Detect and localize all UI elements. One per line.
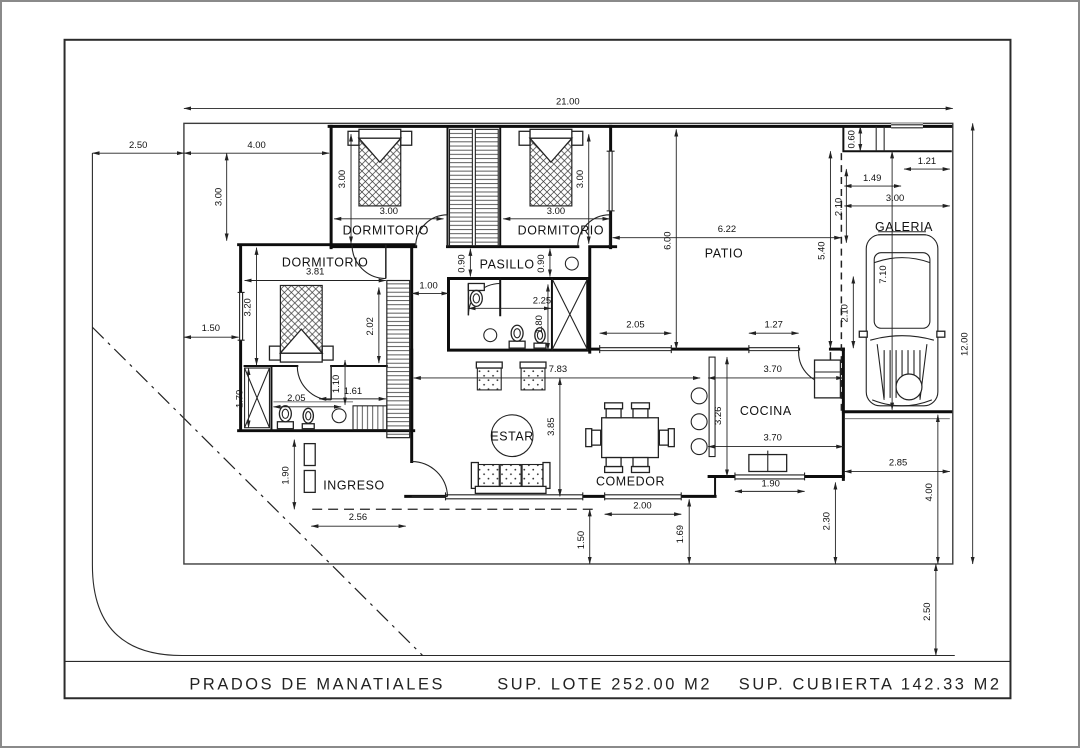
stool-icon (691, 439, 707, 455)
dim-galeria-width: 3.00 (886, 193, 904, 204)
dim-setback-a: 1.50 (576, 531, 587, 549)
dim-estar-height: 3.85 (546, 418, 557, 436)
room-label-dormitorio-c: DORMITORIO (282, 256, 368, 270)
bed-icon (348, 129, 412, 206)
window (600, 345, 672, 353)
dim-passage-width: 1.00 (419, 280, 437, 291)
dim-sidewalk: 2.50 (129, 140, 147, 151)
room-label-dormitorio-a: DORMITORIO (343, 224, 429, 238)
room-label-patio: PATIO (705, 247, 743, 261)
dim-dorm-b-width: 3.00 (547, 206, 565, 217)
floor-plan-drawing: 21.00 12.00 2.50 4.00 3.00 3.00 3.00 3.0… (2, 2, 1078, 746)
dim-bath-width: 2.25 (533, 295, 551, 306)
wardrobe-icon (449, 129, 472, 245)
car-icon (859, 232, 945, 406)
dim-bath-c-closet: 1.70 (235, 390, 246, 408)
bidet-icon (302, 408, 314, 428)
dim-dorm-c-bed: 2.02 (365, 317, 376, 335)
washbasin-icon (484, 329, 497, 342)
armchair-icon (520, 362, 546, 390)
dim-hall-door-a: 0.90 (456, 254, 467, 272)
dim-backyard-width: 2.85 (889, 458, 907, 469)
dim-bath-c-inner: 1.61 (344, 386, 362, 397)
room-label-cocina: COCINA (740, 404, 792, 418)
dim-bath-height: 1.80 (534, 315, 545, 333)
floor-plan-sheet: 21.00 12.00 2.50 4.00 3.00 3.00 3.00 3.0… (0, 0, 1080, 748)
sink-icon (749, 451, 787, 472)
dim-cocina-width-b: 3.70 (764, 433, 782, 444)
dining-set-icon (586, 403, 675, 473)
dim-dorm-b-height: 3.00 (575, 170, 586, 188)
dim-lot-width: 21.00 (556, 96, 580, 107)
dim-patio-window-b: 1.27 (765, 319, 783, 330)
dim-galeria-top-a: 1.21 (918, 156, 936, 167)
dim-ingreso-width: 2.56 (349, 512, 367, 523)
stair-icon (387, 281, 410, 438)
dim-bath-c-width: 2.05 (287, 393, 305, 404)
toilet-icon (468, 283, 484, 306)
step-icon (353, 406, 387, 430)
dim-cocina-height: 3.26 (713, 407, 724, 425)
title-block: PRADOS DE MANATIALES SUP. LOTE 252.00 M2… (189, 675, 1001, 693)
dim-galeria-shelf: 0.60 (846, 130, 857, 148)
room-label-pasillo: PASILLO (480, 258, 535, 272)
dim-patio-height: 6.00 (662, 232, 673, 250)
window (607, 151, 615, 211)
lot-surface: SUP. LOTE 252.00 M2 (497, 675, 712, 693)
dim-cocina-window: 1.90 (762, 478, 780, 489)
stool-icon (691, 388, 707, 404)
dim-setback-b: 1.69 (675, 525, 686, 543)
sofa-icon (471, 463, 550, 494)
covered-surface: SUP. CUBIERTA 142.33 M2 (739, 675, 1002, 693)
armchair-icon (476, 362, 502, 390)
window (749, 345, 799, 353)
room-label-galeria: GALERIA (875, 220, 933, 234)
dim-lot-depth: 12.00 (960, 332, 971, 356)
bed-icon (519, 129, 583, 206)
washbasin-icon (332, 409, 346, 423)
window (605, 492, 682, 500)
dim-patio-window-a: 2.05 (626, 319, 644, 330)
toilet-icon (509, 325, 525, 348)
dim-dorm-a-height: 3.00 (337, 170, 348, 188)
dim-patio-width: 6.22 (718, 224, 736, 235)
fridge-icon (815, 360, 841, 398)
wardrobe-icon (475, 129, 498, 245)
dim-dorm-a-width: 3.00 (380, 206, 398, 217)
room-label-estar: ESTAR (490, 430, 533, 444)
column (304, 444, 315, 466)
dim-car-length: 7.10 (878, 265, 889, 283)
shower-icon (552, 279, 588, 351)
dim-front-yard-width: 4.00 (247, 140, 265, 151)
dim-galeria-depth: 5.40 (816, 241, 827, 259)
dim-estar-width: 7.83 (549, 364, 567, 375)
dim-backyard-step: 2.30 (821, 512, 832, 530)
dim-comedor-window: 2.00 (633, 500, 651, 511)
washbasin-icon (565, 257, 578, 270)
stool-icon (691, 414, 707, 430)
bed-icon (269, 285, 333, 362)
dim-street-offset: 2.50 (922, 603, 933, 621)
dim-cocina-width: 3.70 (764, 364, 782, 375)
dim-car-width: 2.10 (839, 304, 850, 322)
dim-ingreso-depth: 1.90 (280, 466, 291, 484)
toilet-icon (277, 406, 293, 429)
room-label-comedor: COMEDOR (596, 474, 665, 488)
room-label-ingreso: INGRESO (323, 478, 384, 492)
dim-bath-c-door: 1.10 (331, 375, 342, 393)
dim-galeria-offset: 2.10 (833, 198, 844, 216)
dim-dorm-c-height: 3.20 (243, 298, 254, 316)
dim-side-setback: 1.50 (202, 323, 220, 334)
window (891, 123, 923, 129)
dim-hall-door-b: 0.90 (536, 254, 547, 272)
column (304, 470, 315, 492)
room-label-dormitorio-b: DORMITORIO (518, 224, 604, 238)
dim-backyard-depth: 4.00 (924, 483, 935, 501)
door (412, 462, 448, 497)
dim-galeria-top-b: 1.49 (863, 173, 881, 184)
project-name: PRADOS DE MANATIALES (189, 675, 445, 693)
dim-front-yard-depth: 3.00 (214, 188, 225, 206)
